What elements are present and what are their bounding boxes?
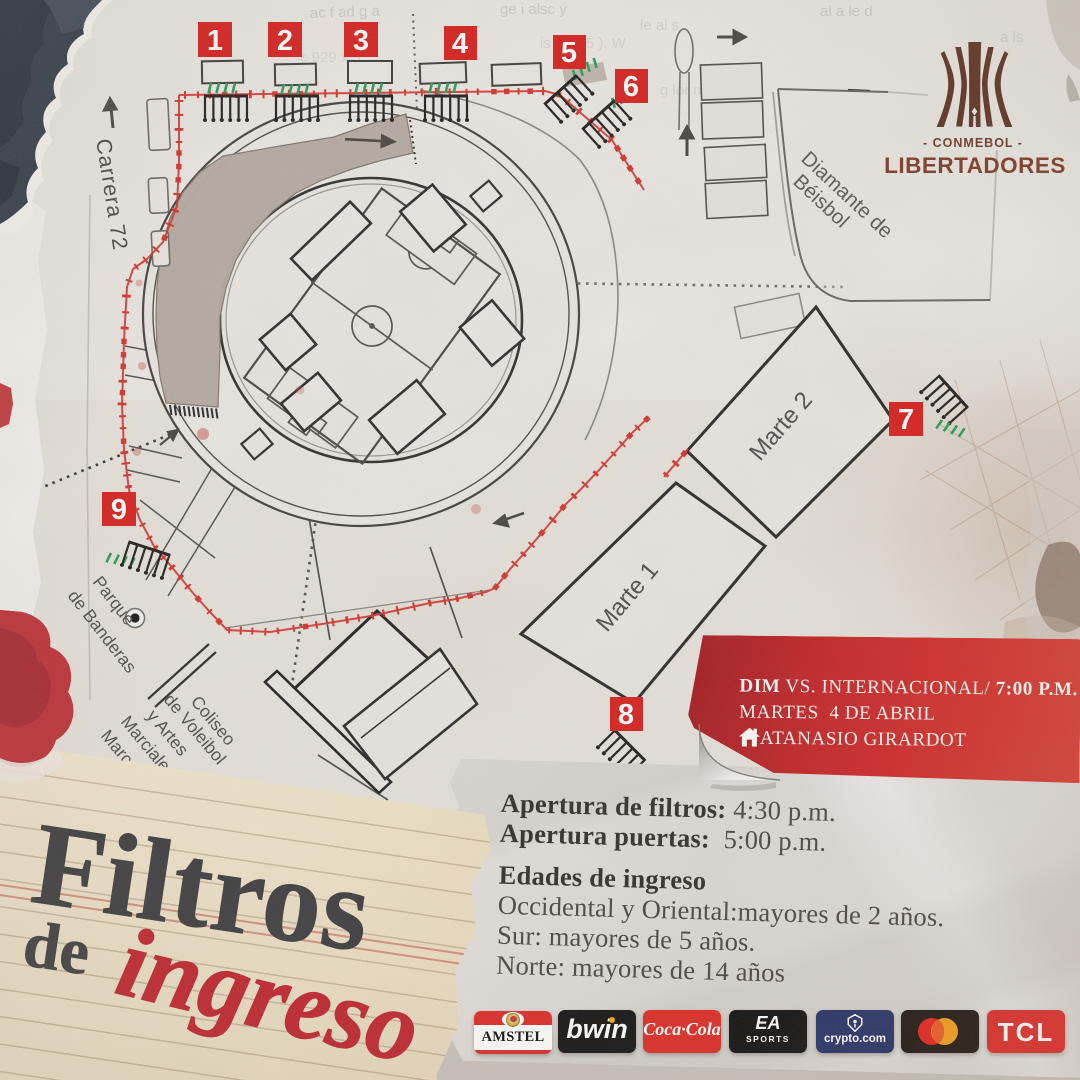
svg-text:7: 7 (898, 404, 914, 436)
svg-text:g lor m: g lor m (660, 82, 706, 99)
svg-text:ge i alsc y: ge i alsc y (500, 1, 567, 18)
svg-text:2: 2 (277, 25, 293, 57)
svg-text:ac f ad g a: ac f ad g a (310, 3, 381, 22)
svg-text:5: 5 (561, 37, 577, 69)
svg-text:3: 3 (353, 25, 369, 57)
svg-text:- CONMEBOL -: - CONMEBOL - (923, 136, 1023, 150)
svg-text:le al s: le al s (640, 17, 679, 34)
svg-text:LIBERTADORES: LIBERTADORES (884, 153, 1066, 178)
svg-text:al a le d: al a le d (820, 3, 873, 20)
svg-text:9: 9 (111, 494, 127, 526)
svg-text:a ls: a ls (1000, 29, 1023, 46)
svg-text:8: 8 (618, 699, 634, 731)
svg-text:6: 6 (623, 71, 639, 103)
svg-text:1: 1 (207, 25, 223, 57)
svg-text:4: 4 (452, 28, 468, 60)
